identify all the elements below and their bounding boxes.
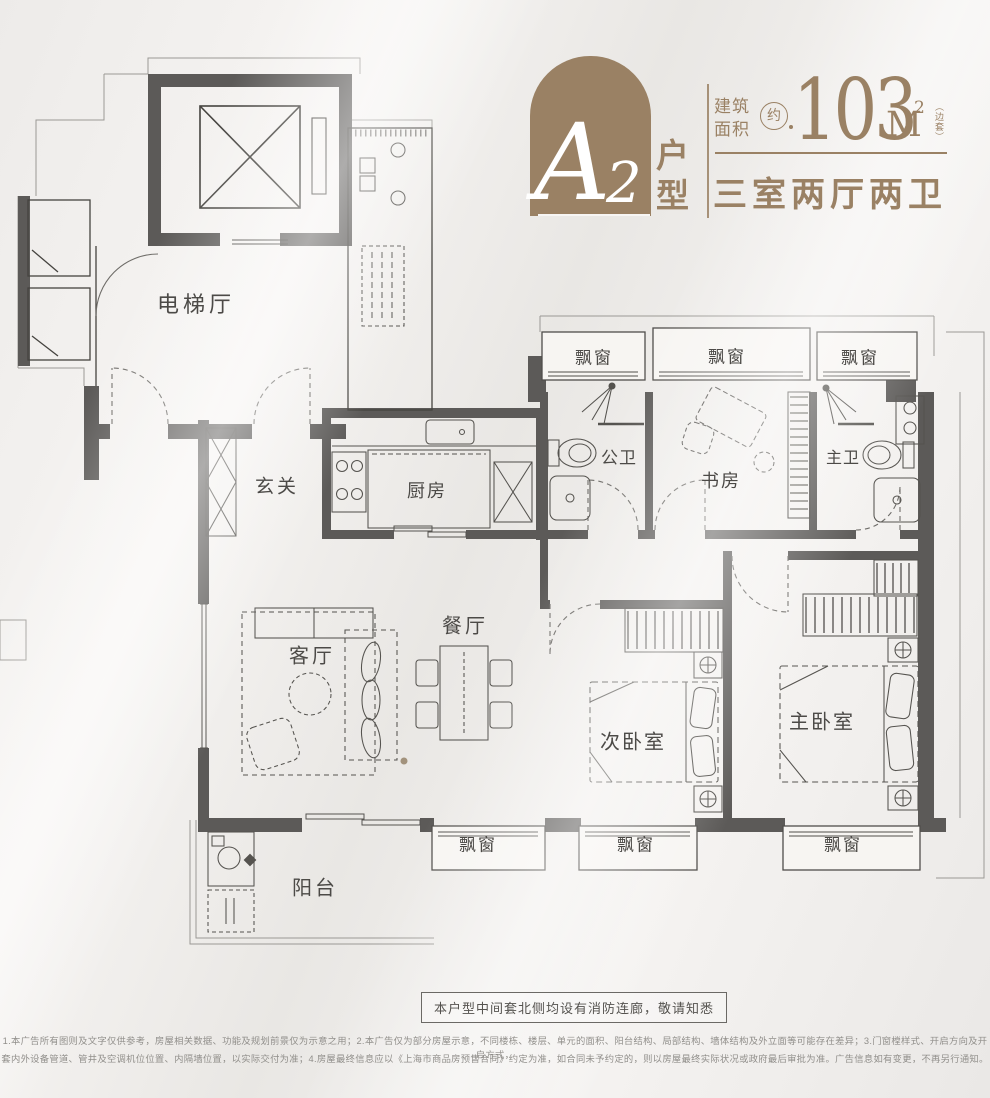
thin-partitions bbox=[28, 128, 432, 410]
layout-summary: 三室两厅两卫 bbox=[713, 167, 947, 216]
floor-plan-drawing bbox=[0, 0, 990, 1098]
furniture-balcony bbox=[208, 832, 256, 932]
fire-corridor-notice: 本户型中间套北侧均设有消防连廊，敬请知悉 bbox=[421, 992, 727, 1023]
room-label-master-bedroom: 主卧室 bbox=[789, 706, 855, 735]
room-label-study: 书房 bbox=[701, 467, 741, 493]
room-label-kitchen: 厨房 bbox=[407, 477, 447, 503]
bay-window-label-bottom-1: 飘窗 bbox=[459, 831, 497, 856]
accent-dot bbox=[401, 758, 408, 765]
furniture-master-bedroom bbox=[780, 560, 918, 810]
room-label-foyer: 玄关 bbox=[255, 472, 299, 499]
room-label-dining-room: 餐厅 bbox=[442, 610, 488, 639]
disclaimer-line-2: 套内外设备管道、管井及空调机位位置、内隔墙位置，以实际交付为准；4.房屋最终信息… bbox=[0, 1051, 990, 1065]
header-divider bbox=[707, 84, 709, 218]
bay-window-label-bottom-2: 飘窗 bbox=[617, 831, 655, 856]
room-label-master-bath: 主卫 bbox=[826, 444, 860, 468]
area-exponent: 2 bbox=[914, 100, 925, 117]
furniture-kitchen bbox=[332, 420, 536, 528]
room-label-second-bedroom: 次卧室 bbox=[600, 726, 666, 755]
bay-window-label-bottom-3: 飘窗 bbox=[824, 831, 862, 856]
room-label-elevator-hall: 电梯厅 bbox=[157, 287, 235, 319]
floorplan-page: A 2 户型 建筑面积 约 103 M 2 （边套） 三室两厅两卫 电梯厅 玄关… bbox=[0, 0, 990, 1098]
approx-badge: 约 bbox=[760, 102, 788, 130]
foyer-closet bbox=[206, 428, 236, 536]
unit-letter: A bbox=[534, 110, 611, 216]
area-label: 建筑面积 bbox=[714, 96, 751, 142]
furniture-living bbox=[242, 608, 408, 775]
bay-window-label-top-2: 飘窗 bbox=[708, 343, 746, 368]
utility-room bbox=[350, 133, 430, 326]
unit-type-label: 户型 bbox=[656, 136, 692, 215]
furniture-second-bedroom bbox=[590, 608, 723, 812]
bay-window-label-top-1: 飘窗 bbox=[575, 344, 613, 369]
room-label-public-bath: 公卫 bbox=[601, 444, 637, 469]
header-rule bbox=[715, 152, 947, 154]
furniture-study bbox=[680, 386, 810, 518]
room-label-balcony: 阳台 bbox=[292, 872, 338, 901]
elevator-shaft bbox=[200, 106, 326, 244]
windows bbox=[200, 526, 466, 825]
unit-digit: 2 bbox=[606, 156, 642, 212]
room-label-living-room: 客厅 bbox=[289, 640, 335, 669]
unit-badge-underline bbox=[538, 214, 650, 216]
bay-window-label-top-3: 飘窗 bbox=[841, 344, 879, 369]
area-note: （边套） bbox=[932, 102, 945, 154]
furniture-dining bbox=[416, 646, 512, 740]
